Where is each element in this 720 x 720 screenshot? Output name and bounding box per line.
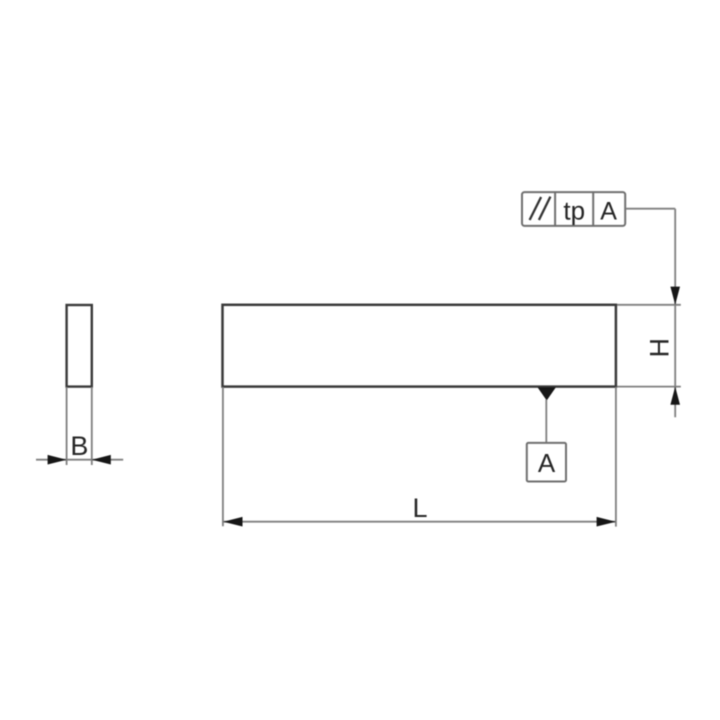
svg-text:A: A [538, 448, 556, 478]
svg-text:A: A [600, 197, 617, 225]
svg-text:H: H [644, 338, 674, 358]
svg-text:B: B [70, 431, 88, 461]
svg-text:tp: tp [563, 196, 585, 226]
svg-text:L: L [412, 493, 427, 523]
